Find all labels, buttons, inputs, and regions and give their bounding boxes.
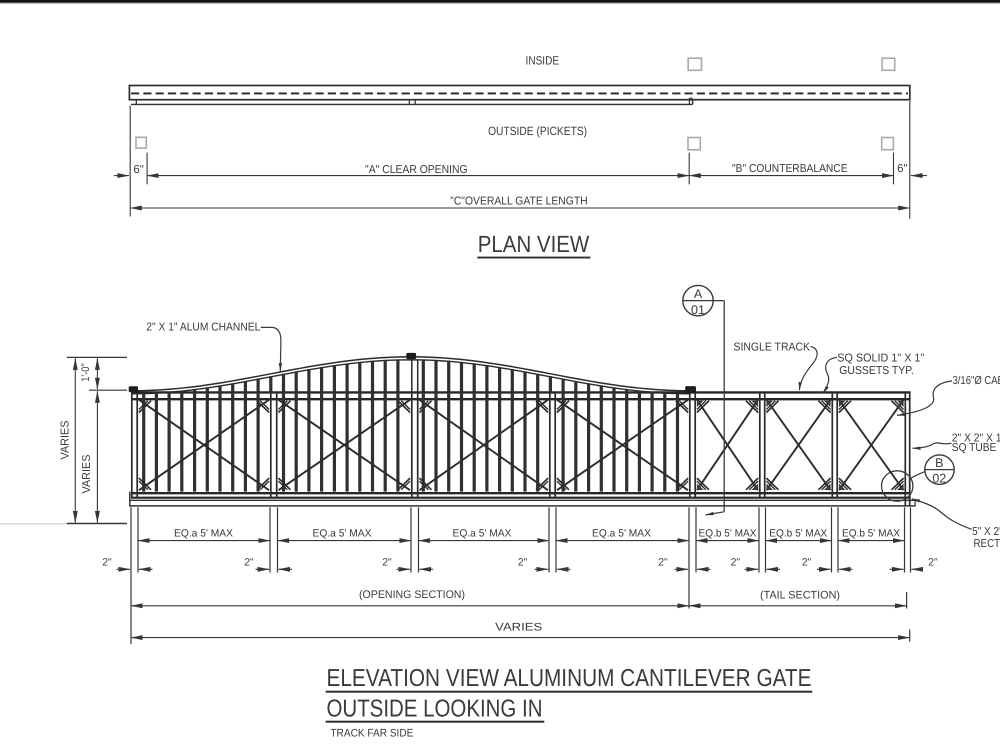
svg-text:01: 01 bbox=[691, 303, 705, 317]
svg-text:2": 2" bbox=[658, 556, 668, 568]
svg-text:2": 2" bbox=[928, 556, 938, 568]
svg-text:2": 2" bbox=[731, 556, 741, 568]
svg-text:(OPENING SECTION): (OPENING SECTION) bbox=[359, 589, 465, 601]
svg-text:1'-0": 1'-0" bbox=[80, 363, 92, 382]
svg-text:ELEVATION VIEW ALUMINUM CANTIL: ELEVATION VIEW ALUMINUM CANTILEVER GATE bbox=[327, 665, 812, 692]
svg-text:EQ.b 5' MAX: EQ.b 5' MAX bbox=[842, 527, 900, 539]
svg-text:02: 02 bbox=[932, 472, 946, 486]
svg-text:VARIES: VARIES bbox=[495, 622, 542, 634]
svg-text:2": 2" bbox=[102, 556, 112, 568]
svg-text:EQ.b 5' MAX: EQ.b 5' MAX bbox=[769, 527, 827, 539]
svg-text:3/16"Ø CABLE: 3/16"Ø CABLE bbox=[953, 375, 1000, 387]
svg-text:VARIES: VARIES bbox=[81, 454, 93, 493]
svg-text:SQ TUBE: SQ TUBE bbox=[952, 442, 997, 454]
svg-text:2": 2" bbox=[802, 556, 812, 568]
svg-text:EQ.b 5' MAX: EQ.b 5' MAX bbox=[699, 527, 757, 539]
svg-text:OUTSIDE LOOKING IN: OUTSIDE LOOKING IN bbox=[327, 695, 543, 722]
svg-text:2": 2" bbox=[244, 556, 254, 568]
svg-text:INSIDE: INSIDE bbox=[526, 54, 560, 68]
svg-text:2": 2" bbox=[382, 556, 392, 568]
svg-text:VARIES: VARIES bbox=[59, 420, 71, 459]
svg-text:"B" COUNTERBALANCE: "B" COUNTERBALANCE bbox=[732, 163, 848, 175]
svg-text:"C"OVERALL GATE LENGTH: "C"OVERALL GATE LENGTH bbox=[450, 196, 588, 208]
svg-text:A: A bbox=[694, 287, 703, 301]
svg-text:SINGLE TRACK: SINGLE TRACK bbox=[734, 341, 811, 353]
svg-text:(TAIL SECTION): (TAIL SECTION) bbox=[760, 589, 840, 601]
svg-text:6": 6" bbox=[133, 164, 144, 176]
svg-text:2": 2" bbox=[518, 556, 528, 568]
svg-text:EQ.a 5' MAX: EQ.a 5' MAX bbox=[313, 527, 372, 539]
svg-text:B: B bbox=[935, 456, 943, 470]
svg-text:TRACK FAR SIDE: TRACK FAR SIDE bbox=[330, 727, 413, 739]
svg-text:RECT TUBE: RECT TUBE bbox=[974, 538, 1000, 550]
svg-text:5" X 2" X 3/16": 5" X 2" X 3/16" bbox=[972, 526, 1000, 538]
svg-text:OUTSIDE (PICKETS): OUTSIDE (PICKETS) bbox=[488, 124, 587, 138]
svg-text:2" X 1" ALUM CHANNEL: 2" X 1" ALUM CHANNEL bbox=[146, 322, 261, 334]
svg-text:"A" CLEAR OPENING: "A" CLEAR OPENING bbox=[365, 164, 468, 176]
svg-text:EQ.a 5' MAX: EQ.a 5' MAX bbox=[592, 527, 651, 539]
svg-text:SQ SOLID 1" X 1": SQ SOLID 1" X 1" bbox=[837, 353, 924, 365]
svg-text:EQ.a 5' MAX: EQ.a 5' MAX bbox=[174, 527, 233, 539]
svg-text:EQ.a 5' MAX: EQ.a 5' MAX bbox=[453, 527, 512, 539]
svg-text:6": 6" bbox=[897, 163, 908, 175]
svg-text:GUSSETS TYP.: GUSSETS TYP. bbox=[839, 365, 914, 377]
svg-text:PLAN VIEW: PLAN VIEW bbox=[478, 231, 590, 257]
